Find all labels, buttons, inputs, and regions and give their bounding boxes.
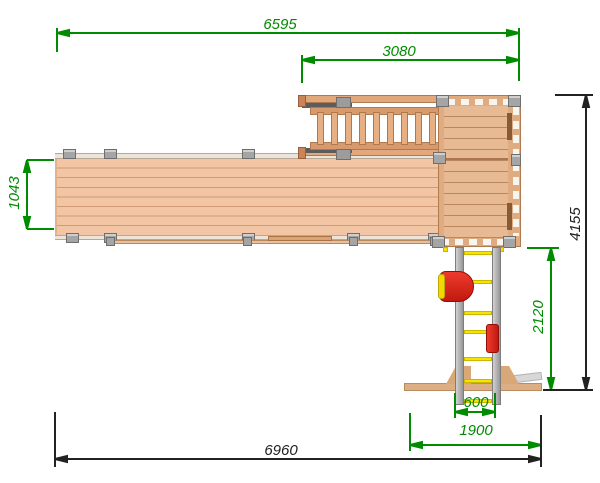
dim-overall-top: 6595 [240,17,320,33]
dim-overall-bottom: 6960 [241,443,321,459]
drawing-canvas: 6595 3080 1043 4155 2120 600 1900 6960 [0,0,600,483]
dim-ramp-width: 1043 [7,163,23,223]
green-dimensions [24,28,559,451]
dim-swing-inner-width: 600 [436,395,516,411]
dim-overall-depth: 4155 [568,194,584,254]
dim-swing-depth: 2120 [531,287,547,347]
dark-dimensions [55,95,593,467]
dim-swing-base-width: 1900 [436,423,516,439]
dim-stairs-section: 3080 [359,44,439,60]
